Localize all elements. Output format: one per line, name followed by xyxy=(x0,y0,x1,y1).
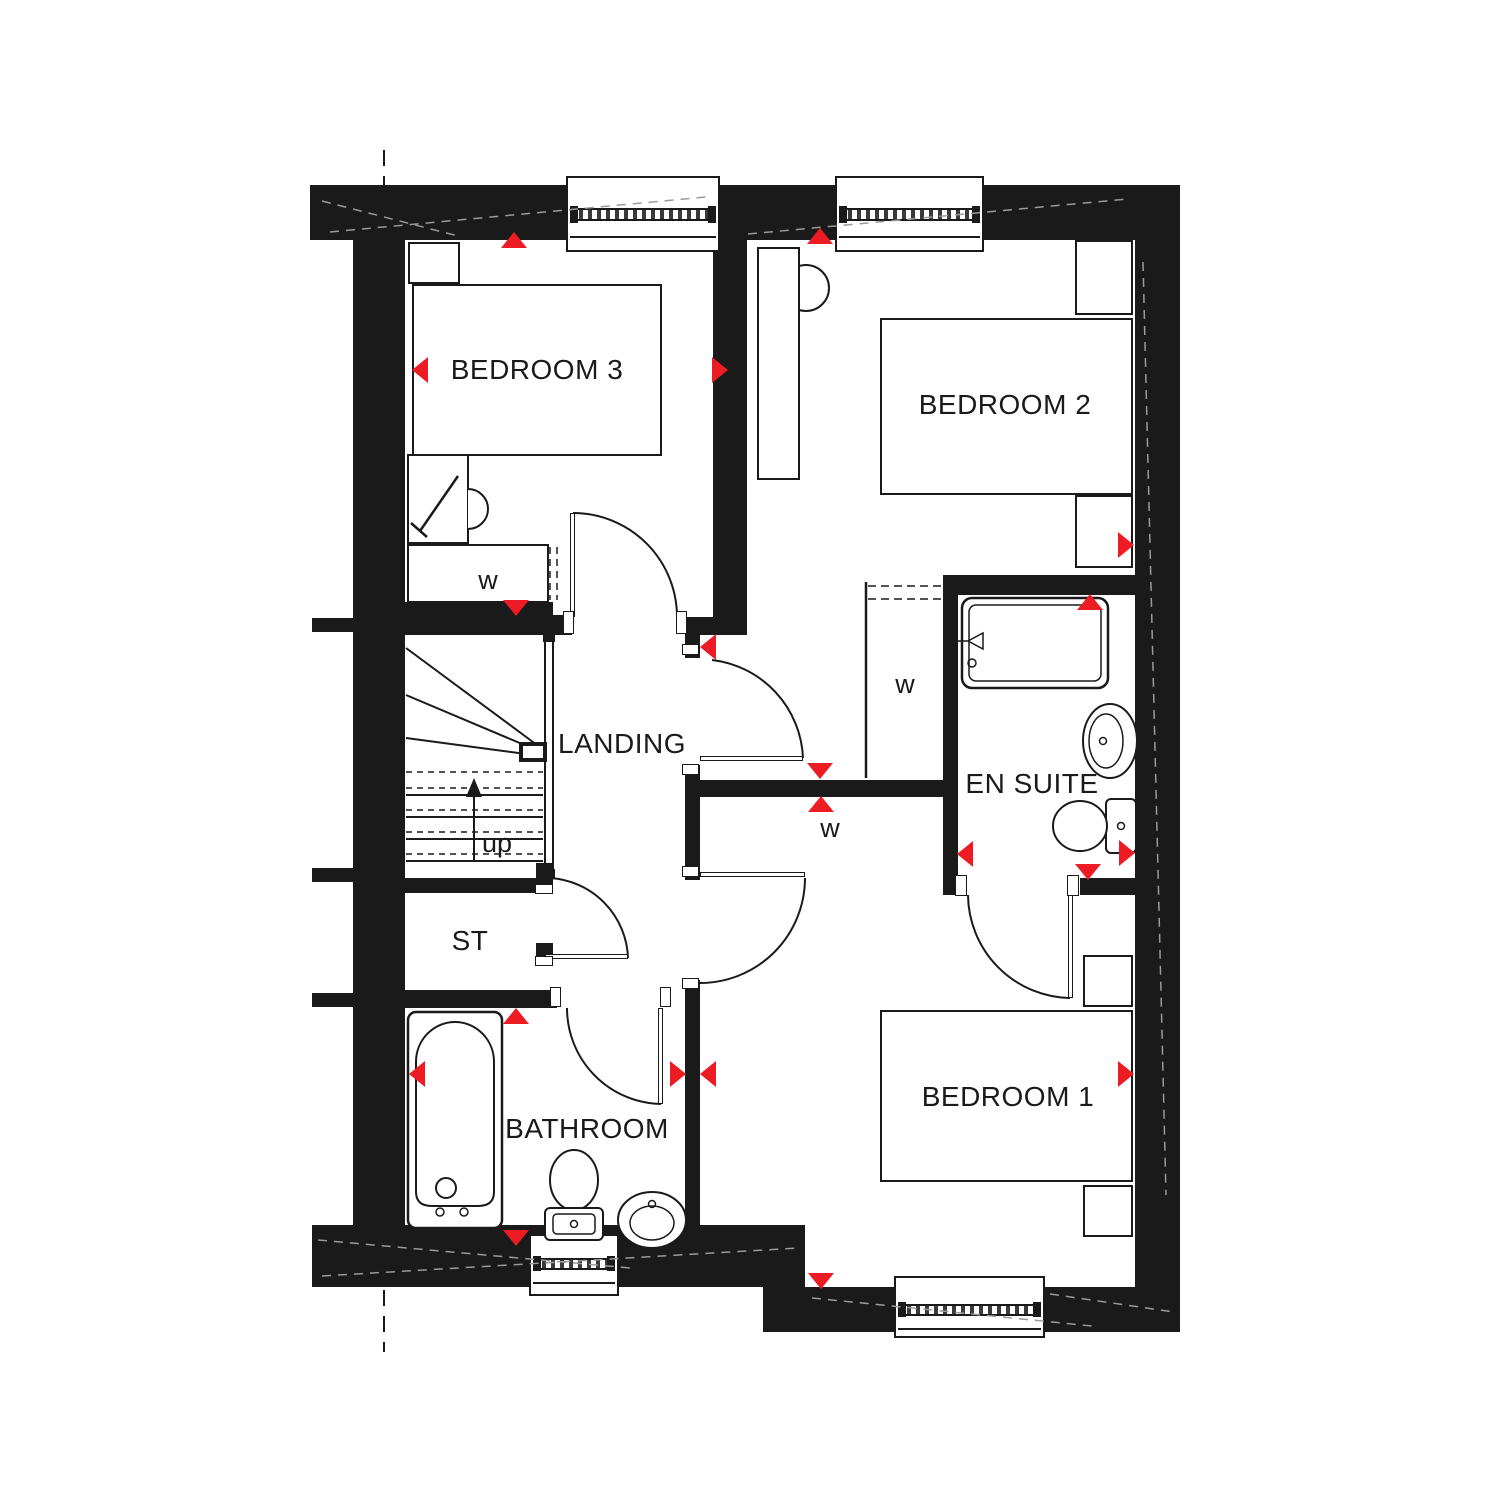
door-leaf-bedroom1 xyxy=(700,872,805,877)
red-arrow-marker-icon xyxy=(1119,840,1135,866)
door-jamb xyxy=(955,875,967,896)
room-label-bedroom-3: BEDROOM 3 xyxy=(407,354,667,386)
bedroom1-bedside-table xyxy=(1083,1185,1133,1237)
stair-banister-cap xyxy=(543,633,555,642)
door-jamb xyxy=(682,978,699,989)
bathroom-toilet xyxy=(545,1150,603,1240)
red-arrow-marker-icon xyxy=(712,357,728,383)
red-arrow-marker-icon xyxy=(807,228,833,244)
wardrobe-label: w xyxy=(438,565,538,596)
room-label-landing: LANDING xyxy=(492,728,752,760)
door-jamb xyxy=(535,956,553,966)
room-label-bedroom-1: BEDROOM 1 xyxy=(878,1081,1138,1113)
door-jamb xyxy=(682,764,699,775)
stair-up-arrow-icon xyxy=(466,778,482,797)
floor-plan: BEDROOM 3 BEDROOM 2 LANDING EN SUITE ST … xyxy=(0,0,1500,1500)
door-leaf-bedroom3 xyxy=(570,513,575,617)
stair-banister-cap xyxy=(543,869,555,878)
bedroom2-desk xyxy=(757,247,800,480)
bedroom3-dresser xyxy=(408,455,488,543)
stairs-up-label: up xyxy=(447,828,547,859)
door-jamb xyxy=(676,611,687,634)
room-label-storage: ST xyxy=(395,925,545,957)
door-leaf-storage xyxy=(545,954,628,959)
red-arrow-marker-icon xyxy=(808,1273,834,1289)
wardrobe-label: w xyxy=(855,669,955,700)
red-arrow-marker-icon xyxy=(503,1008,529,1024)
door-leaf-ensuite xyxy=(1068,895,1073,998)
red-arrow-marker-icon xyxy=(808,796,834,812)
ensuite-bath xyxy=(956,598,1108,688)
bedroom2-bedside-table xyxy=(1075,240,1133,315)
red-arrow-marker-icon xyxy=(1075,864,1101,880)
red-arrow-marker-icon xyxy=(700,1061,716,1087)
red-arrow-marker-icon xyxy=(503,1230,529,1246)
door-jamb xyxy=(563,611,574,634)
red-arrow-marker-icon xyxy=(501,232,527,248)
bedroom3-bedside-table xyxy=(408,242,460,284)
door-jamb xyxy=(682,644,699,655)
room-label-bedroom-2: BEDROOM 2 xyxy=(875,389,1135,421)
door-jamb xyxy=(660,987,671,1007)
bathroom-sink xyxy=(618,1192,686,1248)
red-arrow-marker-icon xyxy=(1118,532,1134,558)
red-arrow-marker-icon xyxy=(807,763,833,779)
red-arrow-marker-icon xyxy=(1077,594,1103,610)
room-label-bathroom: BATHROOM xyxy=(457,1113,717,1145)
red-arrow-marker-icon xyxy=(957,841,973,867)
red-arrow-marker-icon xyxy=(700,634,716,660)
red-arrow-marker-icon xyxy=(503,600,529,616)
ensuite-sink xyxy=(1083,704,1137,778)
door-jamb xyxy=(550,987,561,1007)
room-label-en-suite: EN SUITE xyxy=(902,768,1162,800)
door-jamb xyxy=(682,866,699,877)
bedroom3-stool xyxy=(468,489,488,529)
bedroom1-bedside-table xyxy=(1083,955,1133,1007)
wardrobe-label: w xyxy=(780,813,880,844)
red-arrow-marker-icon xyxy=(670,1061,686,1087)
door-leaf-bathroom xyxy=(658,1008,663,1104)
door-jamb xyxy=(535,884,553,894)
red-arrow-marker-icon xyxy=(409,1061,425,1087)
